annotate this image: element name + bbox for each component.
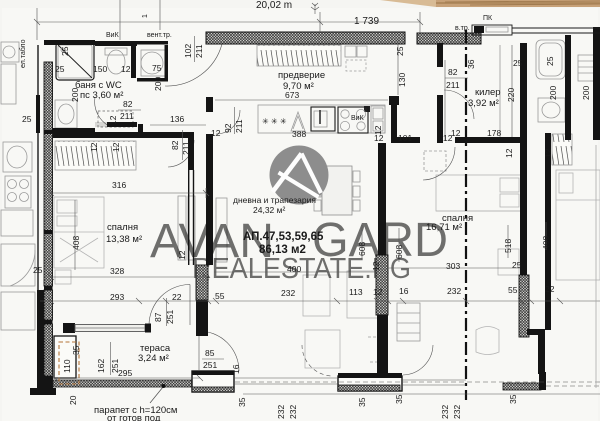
svg-text:35: 35 [394,394,404,404]
svg-text:251: 251 [203,360,217,370]
svg-text:316: 316 [112,180,126,190]
svg-text:ПК: ПК [483,15,493,22]
svg-text:22: 22 [172,292,182,302]
svg-text:25: 25 [33,265,43,275]
svg-text:232: 232 [440,405,450,419]
svg-text:16: 16 [231,364,241,374]
svg-text:25: 25 [22,114,32,124]
svg-text:211: 211 [234,119,244,133]
svg-text:12: 12 [374,133,384,143]
svg-text:220: 220 [506,88,516,102]
svg-text:408: 408 [541,236,551,250]
svg-text:303: 303 [446,261,460,271]
svg-text:25: 25 [395,46,405,56]
svg-text:24,32 м²: 24,32 м² [253,205,285,215]
svg-text:608: 608 [357,242,367,256]
svg-text:328: 328 [110,266,124,276]
svg-text:ВиК: ВиК [351,115,365,122]
svg-text:232: 232 [447,286,461,296]
svg-text:спалня: спалня [107,222,138,233]
svg-text:25: 25 [545,56,555,66]
svg-text:408: 408 [71,236,81,250]
svg-text:86,13 м2: 86,13 м2 [259,244,306,256]
svg-text:предверие: предверие [278,70,325,81]
svg-text:82: 82 [448,67,458,77]
svg-text:75: 75 [152,63,162,73]
svg-text:200: 200 [153,77,163,91]
svg-text:22: 22 [545,284,555,294]
svg-text:12: 12 [504,148,514,158]
svg-text:в.тр.: в.тр. [455,25,470,32]
svg-text:12: 12 [373,287,383,297]
svg-text:дневна и трапезария: дневна и трапезария [233,195,316,205]
svg-text:101: 101 [398,133,412,143]
svg-text:35: 35 [237,397,247,407]
svg-text:20,02 m: 20,02 m [256,0,292,11]
svg-text:12: 12 [543,148,553,158]
svg-text:пс 3,60 м²: пс 3,60 м² [80,90,123,101]
svg-text:673: 673 [285,90,299,100]
svg-text:178: 178 [487,128,501,138]
svg-text:232: 232 [288,405,298,419]
svg-text:211: 211 [120,111,134,121]
svg-text:12: 12 [371,261,381,271]
svg-text:вент.тр.: вент.тр. [147,32,172,39]
svg-text:295: 295 [118,368,132,378]
svg-text:от готов под: от готов под [107,413,161,421]
svg-text:3,92 м²: 3,92 м² [468,98,499,109]
svg-text:110: 110 [62,359,72,373]
svg-text:113: 113 [349,287,363,297]
svg-text:608: 608 [394,245,404,259]
svg-text:136: 136 [170,114,184,124]
svg-text:200: 200 [548,86,558,100]
svg-text:102: 102 [183,44,193,58]
svg-text:82: 82 [170,140,180,150]
svg-text:ел.табло: ел.табло [19,39,27,68]
svg-text:13,38 м²: 13,38 м² [106,234,142,245]
svg-text:85: 85 [205,348,215,358]
svg-text:211: 211 [194,44,204,58]
svg-text:16: 16 [399,286,409,296]
svg-text:25: 25 [55,64,65,74]
svg-text:55: 55 [215,291,225,301]
svg-text:3,24 м²: 3,24 м² [138,353,169,364]
svg-text:150: 150 [93,64,107,74]
svg-text:232: 232 [452,405,462,419]
svg-text:12: 12 [108,115,118,125]
svg-text:130: 130 [397,73,407,87]
svg-text:1: 1 [142,14,149,18]
svg-text:232: 232 [281,288,295,298]
svg-text:55: 55 [508,285,518,295]
svg-text:16,71 м²: 16,71 м² [426,222,462,233]
svg-text:35: 35 [71,345,81,355]
svg-text:35: 35 [508,394,518,404]
svg-text:20: 20 [68,395,78,405]
svg-text:35: 35 [357,397,367,407]
svg-text:36: 36 [466,59,476,69]
svg-text:82: 82 [123,99,133,109]
svg-text:200: 200 [581,86,591,100]
svg-text:килер: килер [475,87,501,98]
svg-text:293: 293 [110,292,124,302]
svg-text:12: 12 [211,128,221,138]
svg-text:518: 518 [503,239,513,253]
svg-text:АП.47,53,59,65: АП.47,53,59,65 [243,231,324,243]
svg-text:92: 92 [223,123,233,133]
svg-text:232: 232 [276,405,286,419]
svg-text:12: 12 [177,250,187,260]
svg-text:25: 25 [512,260,522,270]
svg-text:12: 12 [89,142,99,152]
svg-text:ВиК: ВиК [106,32,120,39]
svg-text:388: 388 [292,129,306,139]
svg-text:25: 25 [513,58,523,68]
svg-text:162: 162 [96,359,106,373]
svg-text:87: 87 [153,312,163,322]
svg-text:12: 12 [443,133,453,143]
svg-text:211: 211 [446,80,460,90]
svg-text:✳ ✳ ✳: ✳ ✳ ✳ [262,117,287,126]
svg-text:1 739: 1 739 [354,16,379,27]
svg-text:25: 25 [60,46,70,56]
svg-text:12: 12 [111,142,121,152]
svg-text:12: 12 [121,64,131,74]
svg-text:400: 400 [287,264,301,274]
